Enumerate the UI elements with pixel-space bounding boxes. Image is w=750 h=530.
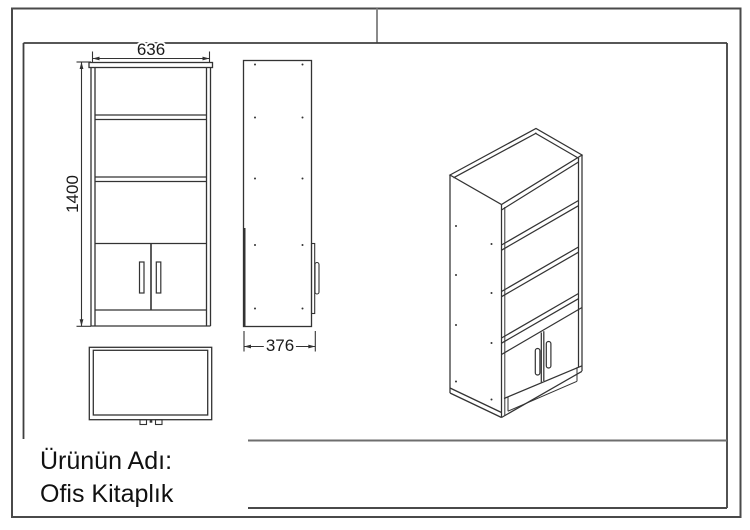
top-view: [89, 347, 211, 424]
dim-depth: 376: [244, 331, 315, 355]
drawing-canvas: 636 1400 376: [0, 0, 750, 530]
side-door-profile: [312, 244, 315, 314]
iso-top-edge-inner-right: [535, 133, 579, 159]
iso-shelf2-a: [502, 247, 579, 292]
dim-height-arrow-top: [80, 62, 84, 69]
iso-bottom-left: [450, 393, 502, 418]
iso-door-handle-right: [546, 342, 551, 369]
dim-depth-arrow-left: [244, 345, 251, 349]
iso-cabinet-top-b: [502, 299, 579, 344]
dim-width-text: 636: [137, 40, 165, 59]
dim-depth-arrow-right: [308, 345, 315, 349]
isometric-view: [450, 129, 582, 418]
dim-width-arrow-right: [203, 57, 210, 61]
title-block: Ürünün Adı: Ofis Kitaplık: [40, 447, 174, 508]
iso-top-panel-underside: [502, 162, 579, 210]
dim-height-arrow-bottom: [80, 319, 84, 326]
sheet-frame: [12, 9, 741, 518]
iso-top-edge-inner-left: [454, 133, 537, 178]
dim-depth-text: 376: [266, 336, 294, 355]
iso-shelf1-a: [502, 201, 579, 246]
technical-drawing-page: 636 1400 376: [0, 0, 750, 530]
side-door-handle: [315, 263, 319, 295]
iso-screw-dots: [455, 225, 493, 401]
front-door-handle-right: [156, 262, 161, 293]
iso-plinth-front: [508, 381, 577, 411]
side-body: [244, 61, 312, 327]
top-foot-left: [140, 420, 147, 425]
top-center-tick: [150, 420, 153, 423]
side-view: [244, 61, 320, 327]
product-label: Ürünün Adı:: [40, 447, 172, 475]
dim-height: 1400: [63, 62, 91, 326]
iso-top-face: [450, 129, 582, 205]
front-top-cap: [89, 63, 213, 68]
side-screw-dots: [254, 64, 304, 310]
iso-door-handle-left: [535, 349, 540, 376]
top-inner: [93, 350, 207, 415]
dim-height-text: 1400: [63, 175, 82, 213]
iso-shelf2-b: [502, 252, 579, 297]
product-name: Ofis Kitaplık: [40, 480, 174, 508]
front-door-handle-left: [140, 262, 145, 293]
iso-shelf1-b: [502, 206, 579, 251]
top-outer: [89, 347, 211, 419]
dim-width-arrow-left: [93, 57, 100, 61]
top-foot-right: [156, 420, 163, 425]
front-view: [89, 63, 213, 327]
iso-plinth-left-top: [450, 388, 502, 413]
